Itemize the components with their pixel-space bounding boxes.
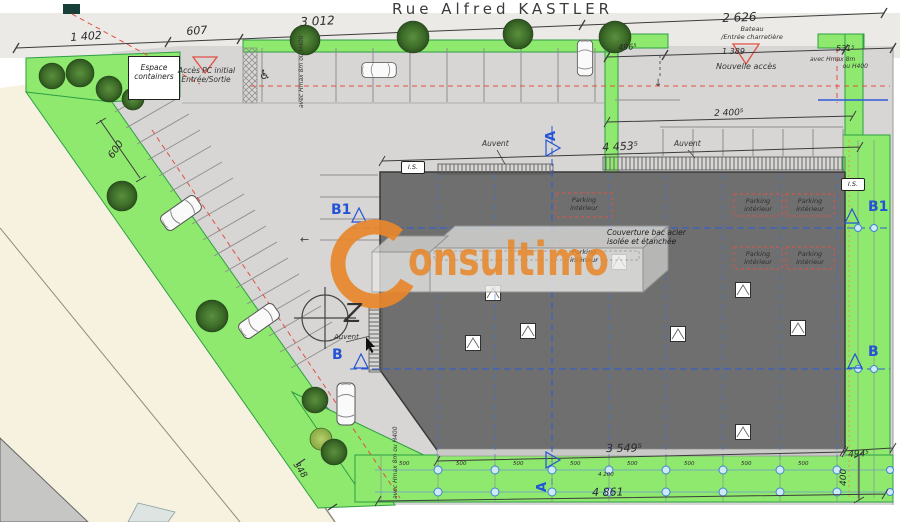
parking-interieur-r1: Parking intérieur <box>734 198 782 214</box>
site-plan: Rue Alfred KASTLER 3 012 2 626 1 402 607… <box>0 0 900 522</box>
auvent-label-top-1: Auvent <box>482 139 509 148</box>
dim-494: 494⁵ <box>848 450 869 460</box>
auvent-label-top-2: Auvent <box>674 139 701 148</box>
dim-4453: 4 453⁵ <box>602 140 638 153</box>
dim-2400: 2 400⁵ <box>714 109 744 119</box>
section-a-top: A <box>545 131 558 141</box>
dim-3549: 3 549⁵ <box>606 442 642 454</box>
section-b-right: B <box>868 345 879 359</box>
parking-interieur-l1: Parking intérieur <box>556 197 612 213</box>
dim-3012: 3 012 <box>300 14 335 28</box>
watermark-text: onsultimo <box>408 232 609 286</box>
dim-500-4: 500 <box>570 462 581 468</box>
entry-arrow-down-icon: ↓ <box>654 78 662 90</box>
is-label-left: I.S. <box>401 161 425 174</box>
dim-500-6: 500 <box>684 462 695 468</box>
parking-interieur-r2: Parking intérieur <box>786 198 834 214</box>
dim-500-5: 500 <box>627 462 638 468</box>
dim-4200: 4 200 <box>598 473 614 479</box>
dim-500-2: 500 <box>456 462 467 468</box>
north-letter: Z <box>344 299 362 330</box>
dim-496: 496⁵ <box>618 43 637 52</box>
auvent-label-west: Auvent <box>334 333 359 341</box>
parking-interieur-r4: Parking intérieur <box>786 251 834 267</box>
street-name: Rue Alfred KASTLER <box>392 0 613 18</box>
dim-500-3: 500 <box>513 462 524 468</box>
acces-pc-label: Accès PC initial Entrée/Sortie <box>178 66 234 84</box>
dim-500-1: 500 <box>399 462 410 468</box>
aisle-arrow-left-icon: ← <box>300 233 309 246</box>
section-b1-left: B1 <box>331 203 351 217</box>
dim-500-8: 500 <box>798 462 809 468</box>
couverture-label: Couverture bac acier isolée et étanchée <box>607 228 686 246</box>
dim-1402: 1 402 <box>70 30 102 43</box>
dim-500-7: 500 <box>741 462 752 468</box>
dim-4861: 4 861 <box>592 486 624 498</box>
dim-607: 607 <box>186 25 208 37</box>
bateau-label: Bateau /Entrée charretière <box>712 26 792 42</box>
parking-interieur-r3: Parking intérieur <box>734 251 782 267</box>
section-a-bottom: A <box>536 482 549 492</box>
building-footprint <box>380 172 845 456</box>
nouvelle-acces-label: Nouvelle accès <box>716 62 776 72</box>
is-label-right: I.S. <box>841 178 865 191</box>
wheelchair-icon: ♿ <box>259 68 271 84</box>
hedge-note-right: avec Hmax 8m ou H400 <box>810 56 868 70</box>
espace-containers-box: Espace containers <box>128 56 180 100</box>
pedestrian-hatch <box>243 48 257 103</box>
dim-2626: 2 626 <box>722 11 757 24</box>
dim-531: 531⁵ <box>836 45 854 53</box>
dim-1389: 1 389 <box>722 48 745 56</box>
dim-400: 400 <box>840 469 849 486</box>
section-b1-right: B1 <box>868 200 888 214</box>
hedge-note-bottom: avec Hmax 8m ou H400 <box>392 426 399 499</box>
section-b-left: B <box>332 348 343 362</box>
hedge-note-left: avec Hmax 8m ou H400 <box>298 35 305 108</box>
